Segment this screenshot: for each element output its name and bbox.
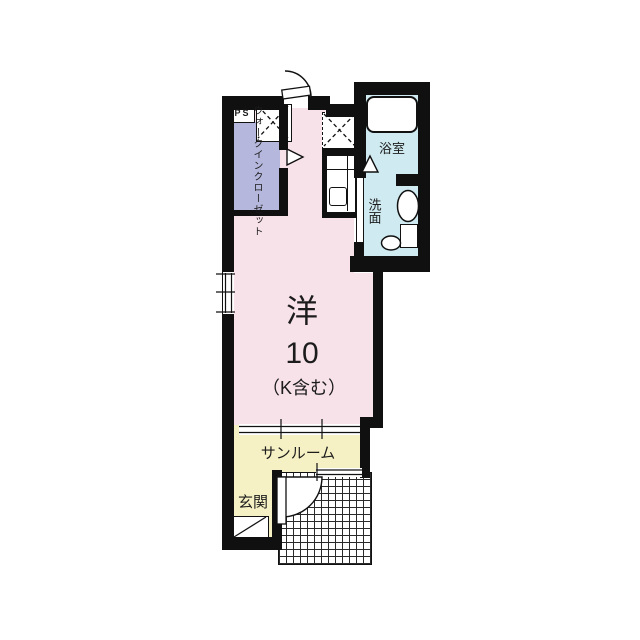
room-sunroom-window-glass	[239, 419, 360, 439]
main-room-type-label: 洋	[283, 290, 321, 328]
entrance-step-diagonal	[234, 517, 266, 537]
refrigerator-x-icon	[324, 114, 355, 146]
closet-door-triangle-icon	[287, 149, 303, 165]
left-window-glass	[216, 273, 235, 313]
top-door-swing-icon	[282, 71, 311, 99]
entrance-door-swing-icon	[277, 477, 322, 524]
bathroom-label: 浴室	[372, 139, 412, 156]
main-room-size-label: 10	[281, 336, 323, 372]
bathroom-door-triangle-icon	[362, 156, 378, 172]
sunroom-porch-window-glass	[316, 463, 362, 481]
washroom-label: 洗面	[366, 188, 382, 234]
walk-in-closet-label: ウォークインクローゼット	[234, 132, 278, 210]
washbasin-icon	[382, 236, 401, 250]
main-room-note-label: （K含む）	[260, 374, 348, 400]
sunroom-label: サンルーム	[246, 442, 350, 462]
walk-in-closet-label-line1: ウォークイン	[248, 105, 264, 171]
walk-in-closet-label-line2: クローゼット	[248, 171, 264, 237]
entrance-label: 玄関	[236, 492, 270, 510]
toilet-bowl-icon	[398, 191, 419, 222]
floor-plan: PS ウォークインクローゼット 浴室 洗面 洋 10 （K含む） サンルーム 玄…	[0, 0, 640, 640]
